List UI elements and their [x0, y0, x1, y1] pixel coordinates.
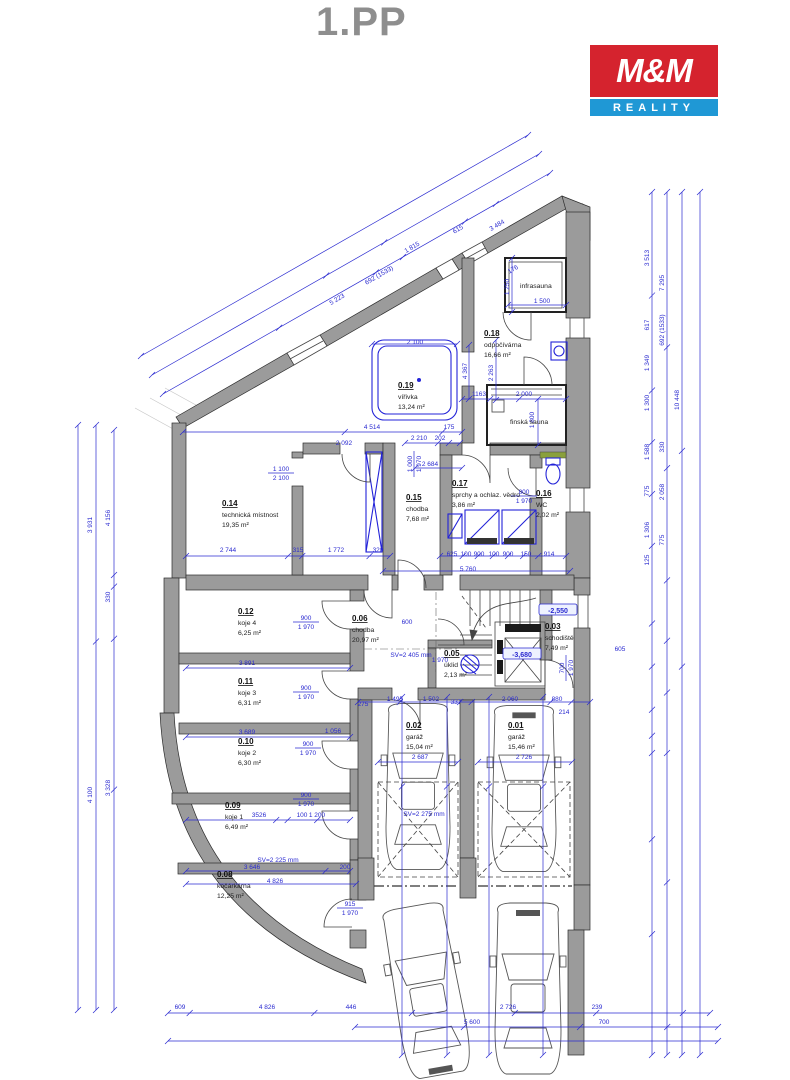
- dim-label: 600: [402, 619, 413, 626]
- dim-label: 320: [373, 547, 384, 554]
- door-size-label: 9151 970: [337, 901, 363, 917]
- svg-text:koje 4: koje 4: [238, 620, 256, 627]
- svg-text:15,04 m²: 15,04 m²: [406, 744, 434, 751]
- svg-text:1 970: 1 970: [298, 624, 315, 631]
- dim-label: 605: [615, 646, 626, 653]
- svg-text:kočárkárna: kočárkárna: [217, 883, 251, 890]
- dim-label: 175: [444, 424, 455, 431]
- floorplan-canvas: 1 8156153 484176692 (1533)5 2231 5001 25…: [0, 0, 790, 1080]
- dim-label: 4 826: [259, 1004, 276, 1011]
- svg-text:chodba: chodba: [406, 506, 429, 513]
- dim-label: 1 200: [309, 812, 326, 819]
- room-label: 0.06chodba20,97 m²: [352, 614, 380, 644]
- svg-text:koje 3: koje 3: [238, 690, 256, 697]
- dim-label: 615: [452, 224, 465, 236]
- svg-text:7,49 m²: 7,49 m²: [545, 645, 569, 652]
- dim-label: 150: [521, 551, 532, 558]
- dim-label: 700: [599, 1019, 610, 1026]
- svg-text:900: 900: [301, 615, 312, 622]
- dim-label: 2 210: [411, 435, 428, 442]
- dim-label: 900: [503, 551, 514, 558]
- svg-text:2,02 m²: 2,02 m²: [536, 512, 560, 519]
- dim-label: 3 646: [244, 864, 261, 871]
- svg-text:0.12: 0.12: [238, 607, 254, 616]
- svg-text:2 100: 2 100: [273, 475, 290, 482]
- fixtures-layer: [364, 258, 572, 1080]
- car-driveway-left: [374, 900, 479, 1080]
- dim-label: 900: [474, 551, 485, 558]
- car-driveway-right: [490, 903, 566, 1074]
- dim-label: 1163: [472, 391, 486, 398]
- dim-label: 2 726: [516, 754, 533, 761]
- level-marker: -3,680: [503, 648, 541, 659]
- door-size-label: 7001 970: [559, 655, 575, 681]
- svg-text:6,31 m²: 6,31 m²: [238, 700, 262, 707]
- svg-text:1 970: 1 970: [568, 659, 575, 676]
- dim-label: 2 684: [422, 461, 439, 468]
- room-label: 0.11koje 36,31 m²: [238, 677, 262, 707]
- room-label: 0.15chodba7,68 m²: [406, 493, 430, 523]
- dim-label: 3 891: [239, 660, 256, 667]
- svg-text:0.01: 0.01: [508, 721, 524, 730]
- door-size-label: 9001 970: [293, 685, 319, 701]
- svg-text:infrasauna: infrasauna: [520, 283, 552, 290]
- room-label: 0.18odpočívárna16,66 m²: [484, 329, 522, 359]
- svg-text:1 100: 1 100: [273, 466, 290, 473]
- dim-label: 5 760: [460, 566, 477, 573]
- dim-label: 914: [544, 551, 555, 558]
- svg-text:0.18: 0.18: [484, 329, 500, 338]
- svg-text:sprchy a ochlaz. vědro: sprchy a ochlaz. vědro: [452, 492, 520, 499]
- dim-label: 100: [297, 812, 308, 819]
- door-size-label: 9001 970: [295, 741, 321, 757]
- door-size-label: 1 1002 100: [268, 466, 294, 482]
- dim-label: 4 367: [462, 362, 469, 379]
- dim-label: 2 726: [500, 1004, 517, 1011]
- dim-label: 3 328: [105, 779, 112, 796]
- dim-label: 1 250: [504, 278, 511, 295]
- svg-text:1 970: 1 970: [298, 801, 315, 808]
- dim-label: 4 156: [105, 509, 112, 526]
- dim-label: 202: [435, 435, 446, 442]
- svg-text:700: 700: [559, 662, 566, 673]
- svg-text:finská sauna: finská sauna: [510, 419, 548, 426]
- dim-label: 2 100: [407, 339, 424, 346]
- dim-label: 609: [175, 1004, 186, 1011]
- dim-label: 5 600: [464, 1019, 481, 1026]
- svg-text:0.14: 0.14: [222, 499, 238, 508]
- dim-label: 1 306: [644, 521, 651, 538]
- room-label: 0.03schodiště7,49 m²: [545, 622, 574, 652]
- duct-shaft: [366, 452, 382, 552]
- page: { "title": "1.PP", "logo": { "top": "M&M…: [0, 0, 790, 1080]
- svg-text:garáž: garáž: [508, 734, 526, 741]
- dim-label: 1 300: [644, 394, 651, 411]
- washbasin: [551, 342, 567, 360]
- room-label: infrasauna: [520, 283, 552, 290]
- svg-text:úklid: úklid: [444, 662, 458, 669]
- svg-text:15,46 m²: 15,46 m²: [508, 744, 536, 751]
- toilet: [540, 452, 566, 484]
- svg-text:1 000: 1 000: [407, 455, 414, 472]
- dim-label: 5 223: [328, 292, 346, 306]
- svg-text:3,86 m²: 3,86 m²: [452, 502, 476, 509]
- svg-text:0.10: 0.10: [238, 737, 254, 746]
- svg-text:13,24 m²: 13,24 m²: [398, 404, 426, 411]
- svg-text:WC: WC: [536, 502, 547, 509]
- dim-label: 10 448: [674, 390, 681, 410]
- dim-label: 2 058: [659, 483, 666, 500]
- dim-label: 1 502: [423, 696, 440, 703]
- dim-label: 880: [552, 696, 563, 703]
- dim-label: 1 056: [325, 728, 342, 735]
- dim-label: 1 588: [644, 443, 651, 460]
- dim-label: 775: [644, 485, 651, 496]
- svg-text:1 970: 1 970: [342, 910, 359, 917]
- dim-label: 7 295: [659, 274, 666, 291]
- svg-text:-3,680: -3,680: [512, 652, 532, 659]
- dim-label: 3 689: [239, 729, 256, 736]
- svg-text:20,97 m²: 20,97 m²: [352, 637, 380, 644]
- dim-label: 100: [461, 551, 472, 558]
- dim-label: 2 000: [516, 391, 533, 398]
- dim-label: 1 495: [387, 696, 404, 703]
- svg-text:2,13 m²: 2,13 m²: [444, 672, 468, 679]
- svg-text:12,25 m²: 12,25 m²: [217, 893, 245, 900]
- dim-label: 200: [340, 864, 351, 871]
- shower-trays: [448, 510, 536, 544]
- svg-text:0.16: 0.16: [536, 489, 552, 498]
- svg-text:-2,550: -2,550: [548, 608, 568, 615]
- dim-label: 3 931: [87, 516, 94, 533]
- dim-label: 1 349: [644, 354, 651, 371]
- svg-text:915: 915: [345, 901, 356, 908]
- svg-text:0.03: 0.03: [545, 622, 561, 631]
- dim-label: 337: [451, 699, 462, 706]
- svg-text:6,25 m²: 6,25 m²: [238, 630, 262, 637]
- room-label: 0.10koje 26,30 m²: [238, 737, 262, 767]
- svg-text:garáž: garáž: [406, 734, 424, 741]
- room-label: 0.14technická místnost19,35 m²: [222, 499, 278, 529]
- svg-text:900: 900: [301, 685, 312, 692]
- svg-text:0.19: 0.19: [398, 381, 414, 390]
- dim-label: SV=2 225 mm: [257, 857, 298, 864]
- svg-text:1 970: 1 970: [516, 498, 533, 505]
- dim-label: 4 514: [364, 424, 381, 431]
- dim-label: 125: [644, 554, 651, 565]
- car-garage-right: [487, 706, 561, 872]
- svg-text:vířivka: vířivka: [398, 394, 418, 401]
- svg-text:chodba: chodba: [352, 627, 375, 634]
- svg-text:900: 900: [301, 792, 312, 799]
- svg-text:6,30 m²: 6,30 m²: [238, 760, 262, 767]
- svg-text:800: 800: [519, 489, 530, 496]
- svg-text:0.11: 0.11: [238, 677, 254, 686]
- svg-text:16,66 m²: 16,66 m²: [484, 352, 512, 359]
- dim-label: 617: [644, 319, 651, 330]
- room-label: 0.16WC2,02 m²: [536, 489, 560, 519]
- room-label: finská sauna: [510, 419, 548, 426]
- dim-label: 692 (1533): [364, 265, 395, 287]
- dim-label: 3526: [252, 812, 267, 819]
- svg-text:1 970: 1 970: [416, 455, 423, 472]
- svg-text:technická místnost: technická místnost: [222, 512, 278, 519]
- dim-label: 3 513: [644, 249, 651, 266]
- svg-text:0.08: 0.08: [217, 870, 233, 879]
- dim-label: 2 687: [412, 754, 429, 761]
- dim-label: 2 092: [336, 440, 353, 447]
- dim-label: 692 (1533): [659, 314, 666, 345]
- dim-label: 625: [447, 551, 458, 558]
- svg-text:0.02: 0.02: [406, 721, 422, 730]
- room-label: 0.09koje 16,49 m²: [225, 801, 249, 831]
- room-label: 0.17sprchy a ochlaz. vědro3,86 m²: [452, 479, 520, 509]
- svg-text:koje 2: koje 2: [238, 750, 256, 757]
- level-marker: -2,550: [539, 604, 577, 615]
- dim-label: 239: [592, 1004, 603, 1011]
- dim-label: 1 500: [534, 298, 551, 305]
- svg-text:19,35 m²: 19,35 m²: [222, 522, 250, 529]
- dim-label: 315: [293, 547, 304, 554]
- dim-label: SV=2 275 mm: [403, 811, 444, 818]
- dim-label: 330: [659, 441, 666, 452]
- svg-text:7,68 m²: 7,68 m²: [406, 516, 430, 523]
- room-label: 0.12koje 46,25 m²: [238, 607, 262, 637]
- svg-text:900: 900: [303, 741, 314, 748]
- room-label: 0.19vířivka13,24 m²: [398, 381, 426, 411]
- dim-label: 775: [659, 534, 666, 545]
- svg-text:0.06: 0.06: [352, 614, 368, 623]
- svg-text:koje 1: koje 1: [225, 814, 243, 821]
- svg-text:1 970: 1 970: [300, 750, 317, 757]
- svg-text:odpočívárna: odpočívárna: [484, 342, 522, 349]
- dim-label: 1 772: [328, 547, 345, 554]
- svg-text:1 970: 1 970: [298, 694, 315, 701]
- svg-text:0.09: 0.09: [225, 801, 241, 810]
- dim-label: 2 060: [502, 696, 519, 703]
- svg-text:6,49 m²: 6,49 m²: [225, 824, 249, 831]
- dim-label: 330: [105, 591, 112, 602]
- svg-text:schodiště: schodiště: [545, 635, 574, 642]
- svg-text:0.17: 0.17: [452, 479, 468, 488]
- dim-label: 2 744: [220, 547, 237, 554]
- dim-label: 1 815: [403, 240, 421, 254]
- dim-label: 100: [489, 551, 500, 558]
- room-label: 0.05úklid2,13 m²: [444, 649, 468, 679]
- door-size-label: 9001 970: [293, 615, 319, 631]
- dim-label: 4 100: [87, 786, 94, 803]
- dim-label: 214: [559, 709, 570, 716]
- svg-text:0.05: 0.05: [444, 649, 460, 658]
- door-size-label: 1 0001 970: [407, 451, 423, 477]
- dim-label: 2 263: [488, 364, 495, 381]
- dim-label: 446: [346, 1004, 357, 1011]
- svg-text:0.15: 0.15: [406, 493, 422, 502]
- dim-label: 4 826: [267, 878, 284, 885]
- dim-label: SV=2 405 mm: [390, 652, 431, 659]
- dim-label: 275: [358, 701, 369, 708]
